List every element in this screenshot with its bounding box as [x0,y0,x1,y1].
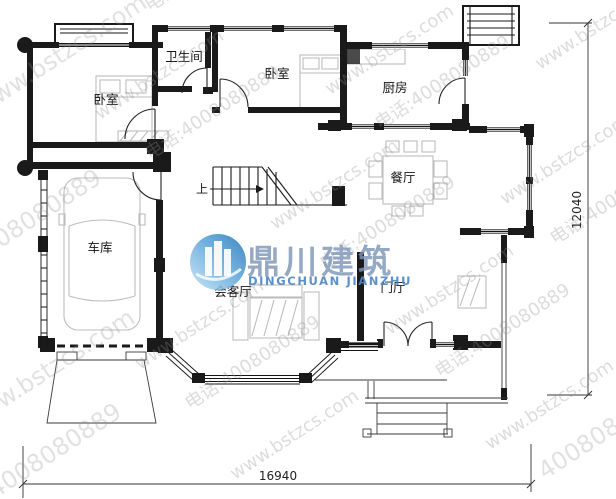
window [352,123,374,130]
window [487,126,520,133]
window [436,341,454,348]
floor-plan-canvas: 上 卧室 卫生间 卧室 厨房 餐厅 车库 会客厅 门厅 16940 12040 … [0,0,616,499]
round-column [17,37,33,53]
room-label-garage: 车库 [87,240,112,255]
column [326,338,341,353]
column [154,258,165,272]
window [481,228,508,235]
watermark-text: 电话:4008080889 [141,0,284,16]
column [452,119,467,131]
room-label-kitchen: 厨房 [382,80,407,95]
window [224,25,272,32]
brand-name-en: DINGCHUAN JIANZHU [248,274,412,288]
window [168,25,210,32]
door-garage [133,172,161,200]
window [284,25,334,32]
brand-logo: 鼎川建筑 DINGCHUAN JIANZHU [190,234,412,290]
room-label-dining: 餐厅 [390,170,415,185]
watermark-text: www.bstzcs.com [531,0,616,74]
column [203,87,213,94]
stairs-up-label: 上 [196,182,208,196]
stairs-direction-arrow [256,185,264,193]
watermark-text: www.bstzcs.com [496,110,616,209]
floor-plan-page: 上 卧室 卫生间 卧室 厨房 餐厅 车库 会客厅 门厅 16940 12040 … [0,0,616,499]
dimension-width-label: 16940 [259,469,297,483]
column [328,120,341,131]
door-bedroom1 [125,109,155,139]
